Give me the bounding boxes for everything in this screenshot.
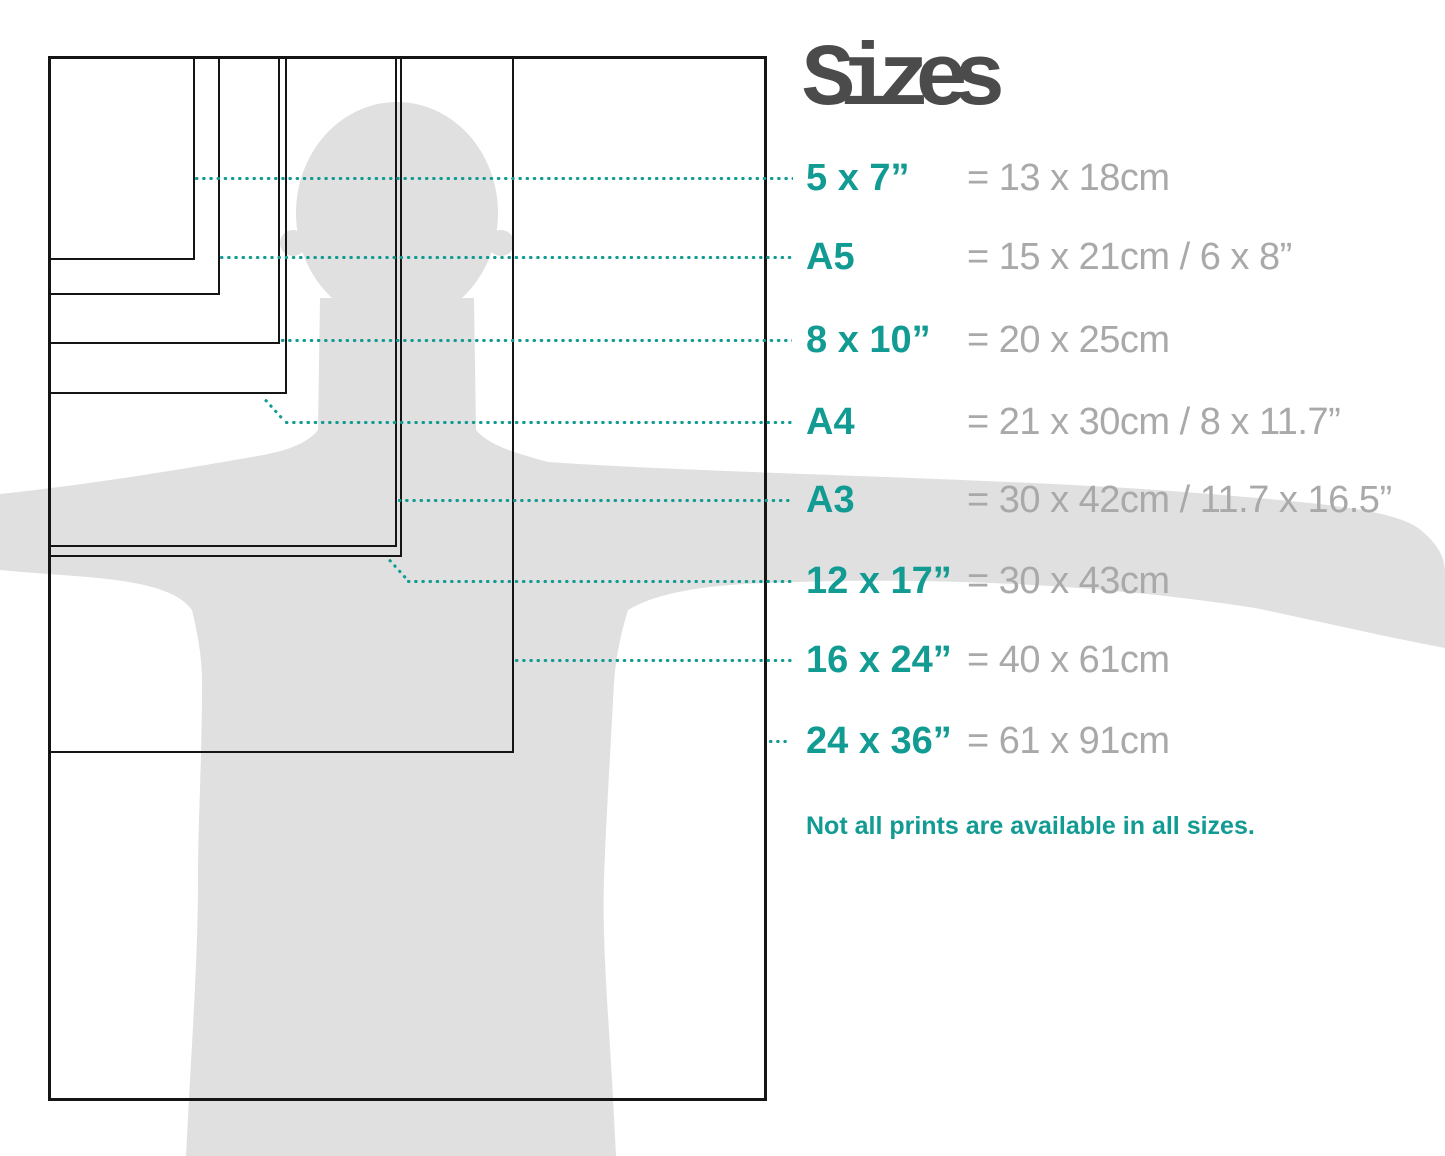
- size-label-12x17: 12 x 17”: [806, 556, 952, 606]
- size-label-16x24: 16 x 24”: [806, 635, 952, 685]
- size-leader-line-16x24: [515, 659, 792, 662]
- size-label-a3: A3: [806, 475, 855, 525]
- size-label-24x36: 24 x 36”: [806, 716, 952, 766]
- size-metric-5x7: = 13 x 18cm: [967, 153, 1170, 203]
- availability-note: Not all prints are available in all size…: [806, 812, 1255, 841]
- size-label-8x10: 8 x 10”: [806, 315, 931, 365]
- size-leader-line-a5: [220, 256, 793, 259]
- size-label-a4: A4: [806, 397, 855, 447]
- size-leader-line-12x17: [407, 580, 792, 583]
- size-leader-line-8x10: [281, 339, 792, 342]
- size-label-a5: A5: [806, 232, 855, 282]
- page-title: Sizes: [802, 34, 991, 130]
- size-leader-line-a4: [285, 421, 792, 424]
- size-metric-8x10: = 20 x 25cm: [967, 315, 1170, 365]
- size-metric-12x17: = 30 x 43cm: [967, 556, 1170, 606]
- size-metric-a5: = 15 x 21cm / 6 x 8”: [967, 232, 1292, 282]
- size-metric-a3: = 30 x 42cm / 11.7 x 16.5”: [967, 475, 1392, 525]
- size-leader-line-5x7: [195, 177, 793, 180]
- size-metric-24x36: = 61 x 91cm: [967, 716, 1170, 766]
- size-leader-line-a3: [398, 499, 792, 502]
- size-metric-a4: = 21 x 30cm / 8 x 11.7”: [967, 397, 1340, 447]
- print-size-chart: 5 x 7”= 13 x 18cmA5= 15 x 21cm / 6 x 8”8…: [0, 0, 1445, 1156]
- size-leader-line-24x36: [769, 740, 787, 743]
- size-metric-16x24: = 40 x 61cm: [967, 635, 1170, 685]
- size-label-5x7: 5 x 7”: [806, 153, 910, 203]
